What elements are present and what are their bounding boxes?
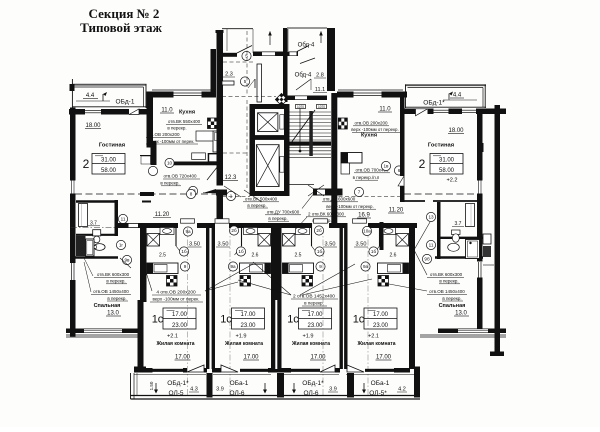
svg-text:1б: 1б [238, 249, 244, 254]
svg-text:3.50: 3.50 [325, 242, 336, 248]
svg-text:Гостиная: Гостиная [99, 143, 125, 149]
svg-text:1с: 1с [353, 314, 365, 326]
svg-text:Обд-4: Обд-4 [295, 73, 312, 79]
svg-text:ОБд-1: ОБд-1 [116, 99, 135, 106]
svg-text:5: 5 [245, 54, 248, 59]
svg-text:17.00: 17.00 [376, 355, 392, 361]
svg-text:1с: 1с [220, 314, 232, 326]
svg-text:ОБд-1*: ОБд-1* [167, 380, 189, 387]
svg-text:2 отв.ОВ 1452х400: 2 отв.ОВ 1452х400 [293, 294, 335, 300]
svg-text:9: 9 [319, 264, 322, 269]
svg-text:1070: 1070 [297, 105, 304, 109]
svg-text:отв.ДУ 600х600: отв.ДУ 600х600 [323, 197, 356, 202]
svg-text:Типовой этаж: Типовой этаж [80, 20, 162, 35]
svg-text:+1.9: +1.9 [235, 334, 246, 340]
svg-text:Жилая комната: Жилая комната [291, 341, 330, 347]
svg-text:+2.1: +2.1 [167, 334, 178, 340]
svg-text:в перекр.: в перекр. [167, 126, 186, 131]
svg-text:11.1: 11.1 [315, 87, 325, 93]
svg-text:17.00: 17.00 [307, 312, 323, 318]
svg-text:17.00: 17.00 [172, 312, 188, 318]
svg-text:3.9: 3.9 [329, 387, 337, 393]
svg-text:2.3: 2.3 [225, 72, 233, 78]
svg-text:23.00: 23.00 [307, 323, 323, 329]
svg-text:верх -100мм от перекр.: верх -100мм от перекр. [326, 204, 373, 209]
svg-text:2.5: 2.5 [159, 253, 166, 259]
svg-text:ОЛ-5: ОЛ-5 [168, 390, 183, 397]
svg-text:3.50: 3.50 [189, 242, 200, 248]
svg-text:9: 9 [184, 264, 187, 269]
svg-text:ОБд-1*: ОБд-1* [423, 99, 445, 106]
svg-text:верх -100мм от перек.: верх -100мм от перек. [150, 139, 195, 144]
svg-text:9а: 9а [230, 264, 236, 269]
svg-text:11.20: 11.20 [389, 208, 404, 214]
svg-text:16.9: 16.9 [358, 213, 370, 219]
svg-text:Обд-4: Обд-4 [298, 43, 315, 49]
svg-text:9в: 9в [125, 258, 131, 263]
svg-text:9б: 9б [424, 257, 430, 262]
svg-text:2б: 2б [231, 228, 237, 233]
svg-text:4.2: 4.2 [398, 387, 406, 393]
svg-text:в перекр.: в перекр. [106, 279, 125, 284]
svg-text:1070: 1070 [318, 105, 325, 109]
svg-text:1б: 1б [371, 249, 377, 254]
svg-text:1б: 1б [317, 249, 323, 254]
svg-text:в перекр.: в перекр. [160, 181, 179, 186]
svg-text:Жилая комната: Жилая комната [155, 341, 194, 347]
svg-text:58.00: 58.00 [439, 168, 455, 174]
svg-text:2б: 2б [316, 228, 322, 233]
svg-text:1б: 1б [181, 249, 187, 254]
svg-text:8: 8 [190, 192, 193, 197]
svg-text:17.00: 17.00 [310, 355, 326, 361]
svg-text:9а: 9а [185, 229, 191, 234]
svg-text:отв.ВК 600х300: отв.ВК 600х300 [97, 272, 130, 277]
svg-text:2 отв.ВК 600х300: 2 отв.ВК 600х300 [308, 212, 344, 217]
svg-text:4.4: 4.4 [86, 93, 95, 99]
svg-text:+2.2: +2.2 [446, 178, 457, 184]
svg-text:5: 5 [244, 79, 247, 84]
svg-text:12.3: 12.3 [225, 175, 237, 181]
svg-text:ОБд-1*: ОБд-1* [302, 380, 324, 387]
svg-text:Гостиная: Гостиная [428, 143, 454, 149]
svg-text:ОБа-1: ОБа-1 [230, 380, 249, 387]
svg-text:отв.ВК 600х300: отв.ВК 600х300 [430, 272, 463, 277]
svg-text:ОЛ-5*: ОЛ-5* [369, 390, 387, 397]
svg-text:17.00: 17.00 [373, 312, 389, 318]
svg-text:в перекр.: в перекр. [442, 296, 461, 301]
svg-text:18.00: 18.00 [448, 128, 464, 134]
svg-text:2.5: 2.5 [295, 253, 302, 259]
svg-text:в перекр./п.п: в перекр./п.п [353, 175, 380, 180]
svg-text:ОЛ-6: ОЛ-6 [229, 390, 244, 397]
svg-text:11.0: 11.0 [161, 108, 173, 114]
svg-text:11.20: 11.20 [155, 212, 170, 218]
svg-text:4 отв.ОВ 200х200: 4 отв.ОВ 200х200 [156, 290, 196, 296]
svg-text:отв.ОВ 200х200: отв.ОВ 200х200 [146, 132, 180, 137]
svg-text:в перекр.: в перекр. [107, 296, 126, 301]
svg-text:2: 2 [83, 157, 90, 171]
svg-text:17.00: 17.00 [175, 355, 191, 361]
svg-text:+2.1: +2.1 [368, 334, 379, 340]
svg-text:3.9: 3.9 [216, 387, 224, 393]
svg-text:1с: 1с [152, 314, 164, 326]
svg-text:1.50: 1.50 [149, 381, 154, 390]
svg-text:7: 7 [358, 190, 361, 195]
svg-text:Секция № 2: Секция № 2 [89, 6, 160, 21]
svg-text:4.4: 4.4 [453, 93, 462, 99]
svg-text:23.00: 23.00 [373, 323, 389, 329]
svg-text:11: 11 [429, 243, 434, 248]
svg-text:17.00: 17.00 [243, 355, 259, 361]
svg-text:Кухня: Кухня [179, 110, 195, 116]
svg-text:Спальная: Спальная [94, 303, 121, 309]
svg-text:+1.9: +1.9 [302, 334, 313, 340]
svg-text:2.6: 2.6 [252, 253, 259, 259]
svg-text:13: 13 [428, 215, 434, 220]
svg-text:31.00: 31.00 [101, 158, 117, 164]
svg-text:13.0: 13.0 [107, 311, 119, 317]
svg-text:в перекр.: в перекр. [247, 203, 266, 208]
svg-text:ОБа-1: ОБа-1 [371, 380, 390, 387]
svg-text:58.00: 58.00 [101, 168, 117, 174]
svg-text:отв.ВК 550х400: отв.ВК 550х400 [168, 119, 201, 124]
svg-text:23.00: 23.00 [240, 323, 256, 329]
svg-text:в перекр.: в перекр. [439, 279, 458, 284]
svg-text:3.50: 3.50 [356, 242, 367, 248]
svg-text:отв.ОВ 720х400: отв.ОВ 720х400 [163, 174, 197, 179]
svg-text:1г: 1г [119, 243, 124, 248]
svg-text:1: 1 [230, 194, 233, 199]
svg-text:4.3: 4.3 [190, 387, 198, 393]
svg-text:Жилая комната: Жилая комната [356, 341, 395, 347]
svg-text:верх -100мм от перек.: верх -100мм от перек. [152, 297, 199, 302]
svg-text:Спальная: Спальная [439, 303, 466, 309]
svg-text:17.00: 17.00 [240, 312, 256, 318]
svg-text:2.6: 2.6 [390, 253, 397, 259]
svg-text:2.8: 2.8 [316, 73, 324, 79]
svg-text:ОЛ-6: ОЛ-6 [303, 390, 318, 397]
svg-text:отв.ОВ 200х200: отв.ОВ 200х200 [354, 121, 388, 126]
svg-text:отв.ВК 500х400: отв.ВК 500х400 [245, 197, 278, 202]
svg-text:31.00: 31.00 [439, 158, 455, 164]
svg-text:в перекр.: в перекр. [304, 301, 324, 306]
svg-text:23.00: 23.00 [172, 323, 188, 329]
svg-text:18.00: 18.00 [85, 123, 101, 129]
svg-text:1в: 1в [384, 164, 390, 169]
svg-text:3.50: 3.50 [218, 242, 229, 248]
svg-text:отв.ДУ 700х600: отв.ДУ 700х600 [267, 210, 300, 215]
svg-text:отв.ОВ 1450х400: отв.ОВ 1450х400 [429, 289, 465, 294]
svg-text:10: 10 [167, 161, 173, 166]
svg-text:1с: 1с [287, 314, 299, 326]
svg-text:2: 2 [419, 157, 426, 171]
svg-text:отв.ОВ 1450х400: отв.ОВ 1450х400 [93, 289, 129, 294]
svg-text:10а: 10а [363, 229, 371, 234]
svg-text:13.0: 13.0 [455, 311, 467, 317]
svg-text:9а: 9а [363, 264, 369, 269]
svg-text:11: 11 [121, 217, 126, 222]
svg-text:11.0: 11.0 [379, 107, 391, 113]
svg-text:Кухня: Кухня [361, 132, 377, 138]
svg-text:в перекр.: в перекр. [268, 216, 287, 221]
